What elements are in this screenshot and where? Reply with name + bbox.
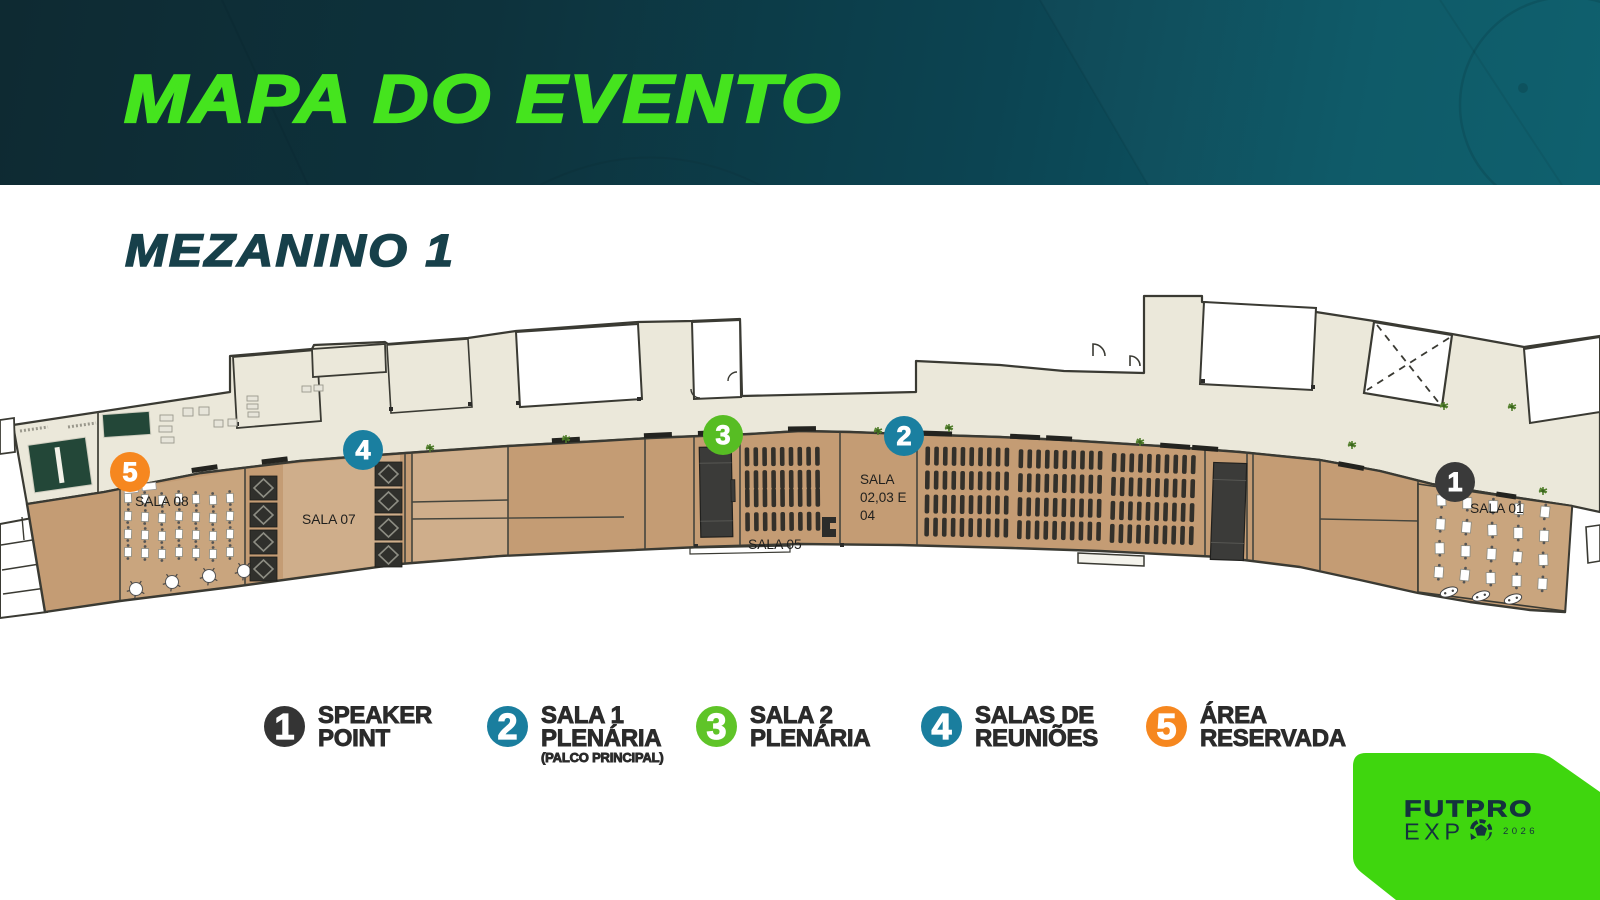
svg-text:04: 04 (860, 508, 876, 523)
svg-text:SALA 01: SALA 01 (1470, 501, 1524, 516)
svg-text:5: 5 (122, 457, 137, 487)
svg-text:1: 1 (1447, 467, 1462, 497)
svg-text:SALA 07: SALA 07 (302, 512, 356, 527)
svg-text:3: 3 (715, 420, 730, 450)
svg-text:SALA: SALA (860, 472, 895, 487)
svg-text:02,03 E: 02,03 E (860, 490, 907, 505)
svg-text:4: 4 (355, 435, 370, 465)
svg-text:2: 2 (896, 421, 911, 451)
svg-text:SALA 08: SALA 08 (135, 494, 189, 509)
svg-text:SALA 05: SALA 05 (748, 537, 802, 552)
